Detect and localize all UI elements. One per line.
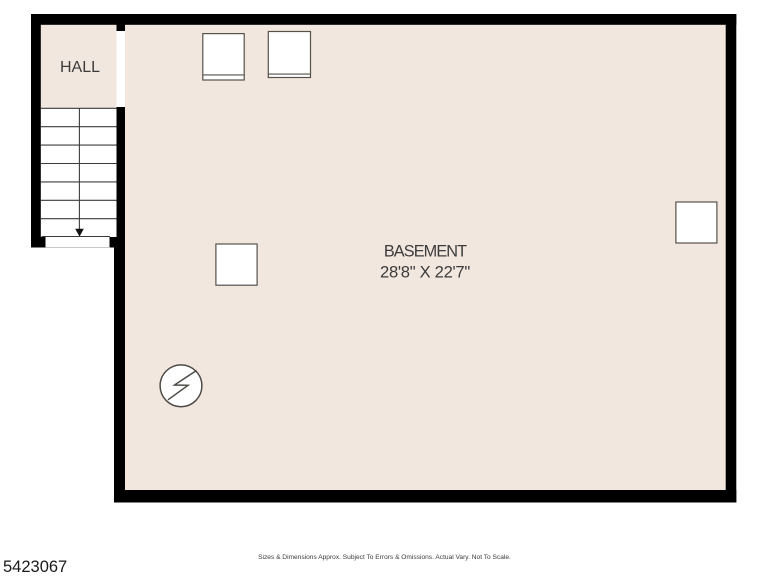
svg-text:HALL: HALL: [60, 59, 100, 76]
svg-text:BASEMENT: BASEMENT: [384, 243, 467, 261]
svg-text:5423067: 5423067: [3, 558, 67, 576]
svg-text:28'8" X 22'7": 28'8" X 22'7": [380, 263, 470, 282]
svg-text:Sizes & Dimensions Approx. Sub: Sizes & Dimensions Approx. Subject To Er…: [258, 554, 511, 561]
